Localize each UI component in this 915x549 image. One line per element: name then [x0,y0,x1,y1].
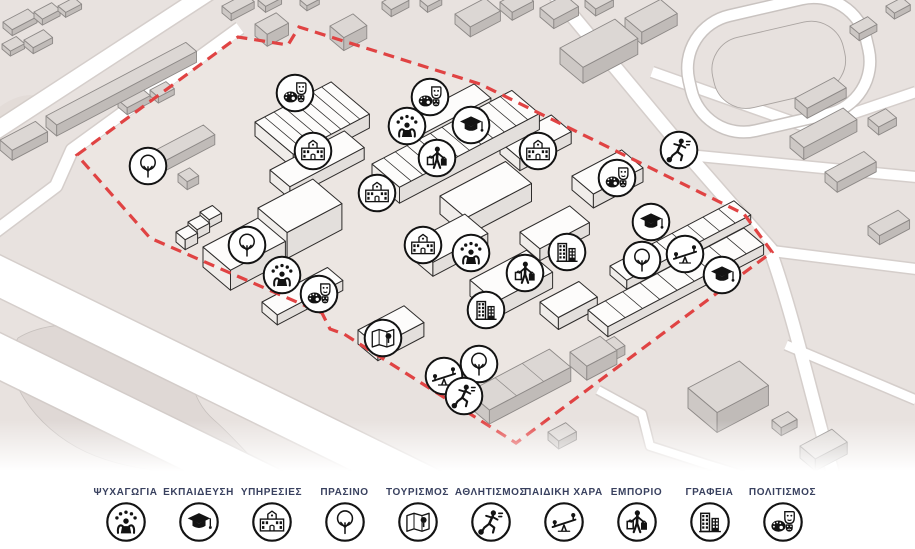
legend-item-education: ΕΚΠΑΙΔΕΥΣΗ [162,480,235,549]
legend-icon-offices [689,501,731,543]
map-icon-playground [667,236,704,273]
legend-item-label: ΓΡΑΦΕΙΑ [686,486,734,499]
map-icon-tourism [365,320,402,357]
map-icon-commerce [419,140,456,177]
legend-icon-culture [762,501,804,543]
legend-item-label: ΕΜΠΟΡΙΟ [611,486,662,499]
map-icon-culture [301,276,338,313]
map-icon-education [633,204,670,241]
legend: ΨΥΧΑΓΩΓΙΑ ΕΚΠΑΙΔΕΥΣΗ ΥΠΗΡΕΣΙΕΣ ΠΡΑΣΙΝΟ Τ… [0,480,915,549]
map-icon-offices [549,234,586,271]
map-icon-services [359,175,396,212]
legend-item-commerce: ΕΜΠΟΡΙΟ [600,480,673,549]
legend-item-green: ΠΡΑΣΙΝΟ [308,480,381,549]
map-icon-offices [468,292,505,329]
map-icon-services [520,133,557,170]
legend-item-services: ΥΠΗΡΕΣΙΕΣ [235,480,308,549]
legend-icon-education [178,501,220,543]
legend-icon-playground [543,501,585,543]
map-icon-culture [599,160,636,197]
site-map [0,0,915,480]
map-icon-green [229,227,266,264]
legend-item-entertainment: ΨΥΧΑΓΩΓΙΑ [89,480,162,549]
legend-item-label: ΤΟΥΡΙΣΜΟΣ [386,486,449,499]
legend-icon-entertainment [105,501,147,543]
map-icon-green [624,242,661,279]
bottom-fade [0,420,915,480]
legend-item-label: ΕΚΠΑΙΔΕΥΣΗ [163,486,234,499]
map-icon-services [295,133,332,170]
map-icon-entertainment [264,257,301,294]
legend-item-label: ΠΡΑΣΙΝΟ [320,486,368,499]
map-icon-entertainment [389,108,426,145]
legend-icon-green [324,501,366,543]
legend-item-tourism: ΤΟΥΡΙΣΜΟΣ [381,480,454,549]
map-icon-sports [661,132,698,169]
legend-item-label: ΠΑΙΔΙΚΗ ΧΑΡΑ [524,486,603,499]
legend-item-playground: ΠΑΙΔΙΚΗ ΧΑΡΑ [527,480,600,549]
map-icon-services [405,227,442,264]
legend-icon-commerce [616,501,658,543]
legend-item-label: ΑΘΛΗΤΙΣΜΟΣ [455,486,526,499]
legend-item-culture: ΠΟΛΙΤΙΣΜΟΣ [746,480,819,549]
legend-icon-sports [470,501,512,543]
legend-item-sports: ΑΘΛΗΤΙΣΜΟΣ [454,480,527,549]
map-icon-sports [446,378,483,415]
map-icon-green [461,346,498,383]
legend-icon-tourism [397,501,439,543]
legend-item-label: ΠΟΛΙΤΙΣΜΟΣ [749,486,816,499]
map-icon-culture [277,75,314,112]
legend-item-label: ΨΥΧΑΓΩΓΙΑ [93,486,157,499]
map-icon-commerce [507,255,544,292]
legend-item-label: ΥΠΗΡΕΣΙΕΣ [241,486,302,499]
map-icon-green [130,148,167,185]
legend-item-offices: ΓΡΑΦΕΙΑ [673,480,746,549]
map-icon-education [453,107,490,144]
masterplan-diagram: ΨΥΧΑΓΩΓΙΑ ΕΚΠΑΙΔΕΥΣΗ ΥΠΗΡΕΣΙΕΣ ΠΡΑΣΙΝΟ Τ… [0,0,915,549]
map-icon-education [704,257,741,294]
map-icon-entertainment [453,235,490,272]
legend-icon-services [251,501,293,543]
